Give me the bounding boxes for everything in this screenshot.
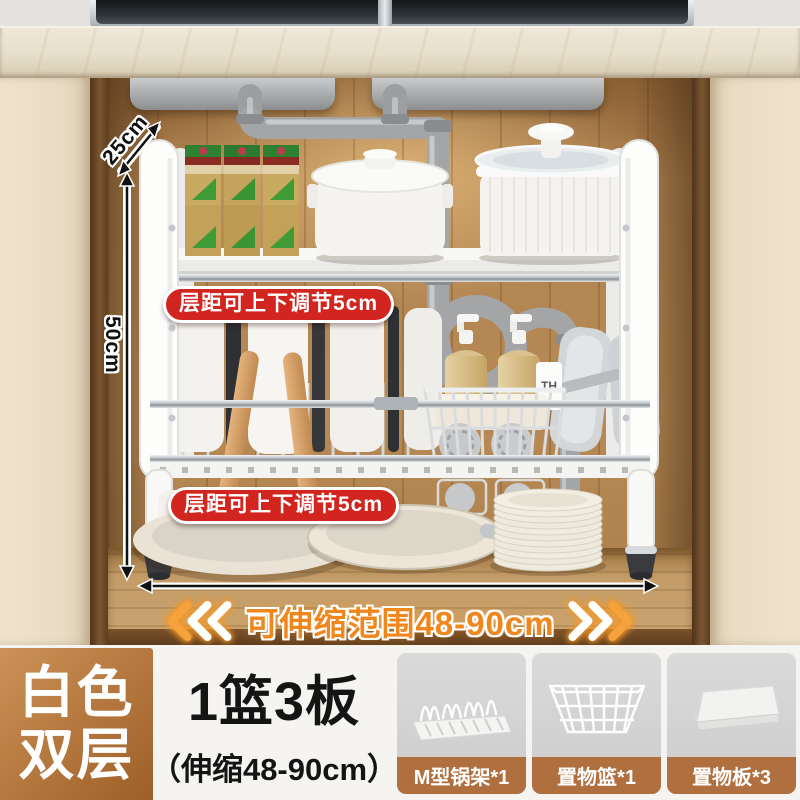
- thumbnail-basket: 置物篮*1: [532, 653, 661, 794]
- wrap-boxes: [185, 145, 299, 256]
- tier-adjust-badge-top: 层距可上下调节5cm: [163, 286, 394, 323]
- shelf-rail: [150, 274, 650, 282]
- thumbnail-board: 置物板*3: [667, 653, 796, 794]
- sink-caddy-basket: TH: [425, 314, 565, 465]
- cabinet-frame-right: [692, 78, 710, 645]
- triple-chevron-right-icon: [567, 600, 637, 642]
- variant-badge: 白色 双层: [0, 648, 153, 800]
- thumbnail-pot-rack: M型锅架*1: [397, 653, 526, 794]
- extendable-range-label: 可伸缩范围48-90cm: [163, 597, 636, 645]
- plate-stack: [490, 489, 606, 576]
- thumbnail-label: 置物篮*1: [532, 757, 661, 794]
- variant-line1: 白色: [19, 662, 135, 724]
- storage-basket-icon: [532, 653, 661, 757]
- countertop: [0, 26, 800, 78]
- triple-chevron-left-icon: [163, 600, 233, 642]
- spec-subtitle: （伸缩48-90cm）: [150, 744, 398, 789]
- component-thumbnails: M型锅架*1 置物篮*1: [397, 653, 796, 794]
- sink-bowl: [96, 0, 688, 24]
- small-white-pot: [307, 149, 453, 265]
- tier-adjust-badge-bottom: 层距可上下调节5cm: [168, 487, 399, 524]
- large-white-pot: [476, 123, 626, 265]
- storage-board-icon: [667, 653, 796, 757]
- under-sink-scene: TH: [0, 0, 800, 645]
- product-info-bar: 白色 双层 1篮3板 （伸缩48-90cm）: [0, 645, 800, 800]
- cabinet-door-left: [0, 78, 90, 645]
- extendable-range-text: 可伸缩范围48-90cm: [245, 597, 554, 645]
- thumbnail-label: 置物板*3: [667, 757, 796, 794]
- spec-title: 1篮3板: [188, 657, 360, 736]
- product-image: TH: [0, 0, 800, 800]
- cabinet-door-right: [710, 78, 800, 645]
- variant-line2: 双层: [19, 724, 135, 786]
- m-pot-rack-icon: [397, 653, 526, 757]
- height-dimension-label: 50cm: [100, 316, 124, 374]
- thumbnail-label: M型锅架*1: [397, 757, 526, 794]
- storage-rack: TH: [108, 78, 692, 645]
- spec-title-block: 1篮3板 （伸缩48-90cm）: [153, 645, 395, 800]
- sink-divider: [378, 0, 392, 26]
